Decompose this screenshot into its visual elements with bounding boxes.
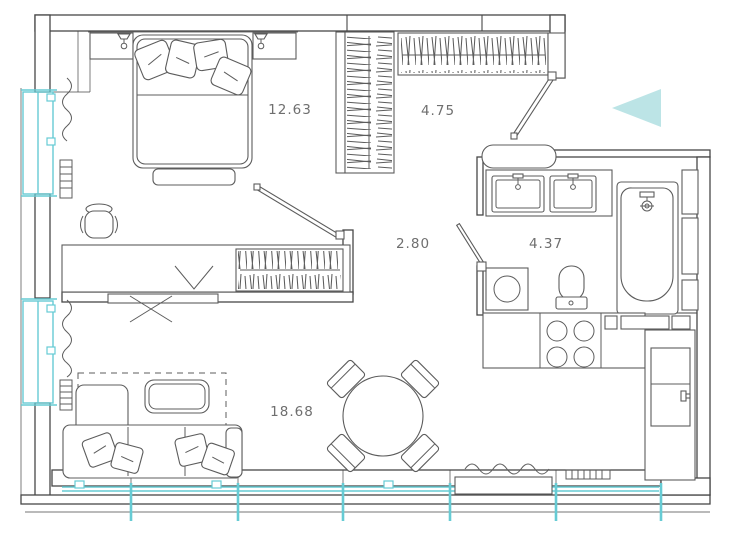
wall-left-middle: [35, 194, 50, 298]
area-label-corridor: 2.80: [396, 236, 430, 252]
wall-left-upper: [35, 15, 50, 92]
wall-bathroom-left-lower: [477, 266, 483, 315]
living-room: [60, 300, 440, 478]
coffee-table: [145, 380, 209, 413]
window-left-lower: [21, 299, 57, 405]
wardrobe-bedroom: [236, 249, 343, 291]
dining-set: [326, 359, 440, 473]
bathtub: [617, 182, 678, 314]
wall-bathroom-left-upper: [477, 157, 483, 215]
dining-table: [343, 376, 423, 456]
wall-top: [35, 15, 565, 31]
sliding-door: [108, 294, 218, 322]
area-label-living-room: 18.68: [270, 404, 314, 420]
bench-pouf: [482, 145, 556, 168]
kitchen: [455, 313, 695, 494]
radiator-living: [60, 380, 72, 410]
bedroom-door: [254, 184, 344, 239]
bathroom-door: [457, 224, 486, 271]
shelving-column: [682, 170, 698, 310]
bed-bench: [153, 169, 235, 185]
double-bed: [133, 35, 253, 185]
wall-bottom: [21, 495, 710, 504]
area-label-hallway: 4.75: [421, 103, 455, 119]
floor-plan: 12.63 4.75 2.80 4.37 18.68: [0, 0, 730, 536]
wardrobe-hall-vertical: [336, 32, 394, 173]
bathroom: [457, 145, 698, 314]
curtain-bedroom: [63, 78, 72, 141]
window-left-upper: [21, 90, 57, 196]
curtain-living: [63, 300, 72, 377]
wardrobe-hall-horizontal: [398, 33, 565, 78]
wall-left-lower: [35, 403, 50, 497]
entry-direction-arrow-icon: [612, 89, 661, 127]
floor-plan-drawing: 12.63 4.75 2.80 4.37 18.68: [0, 0, 730, 536]
window-bench: [455, 464, 552, 494]
area-label-bedroom: 12.63: [268, 102, 312, 118]
wall-bathroom-top: [548, 150, 710, 157]
entrance-door: [511, 72, 556, 139]
wall-right: [697, 157, 710, 495]
area-label-bathroom: 4.37: [529, 236, 563, 252]
fridge: [645, 330, 695, 480]
bedroom: [60, 32, 350, 322]
toilet: [556, 266, 587, 309]
vanity-double-sink: [486, 170, 612, 216]
office-chair: [81, 204, 118, 238]
radiator-bedroom: [60, 160, 72, 198]
washing-machine: [486, 268, 528, 310]
